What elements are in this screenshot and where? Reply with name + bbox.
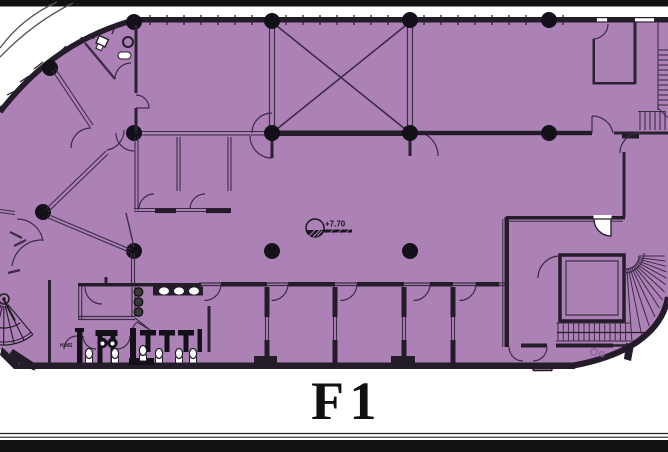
svg-text:H.MS: H.MS [60,343,73,349]
svg-text:+7.70: +7.70 [325,220,346,229]
svg-text:F 1: F 1 [311,371,374,431]
